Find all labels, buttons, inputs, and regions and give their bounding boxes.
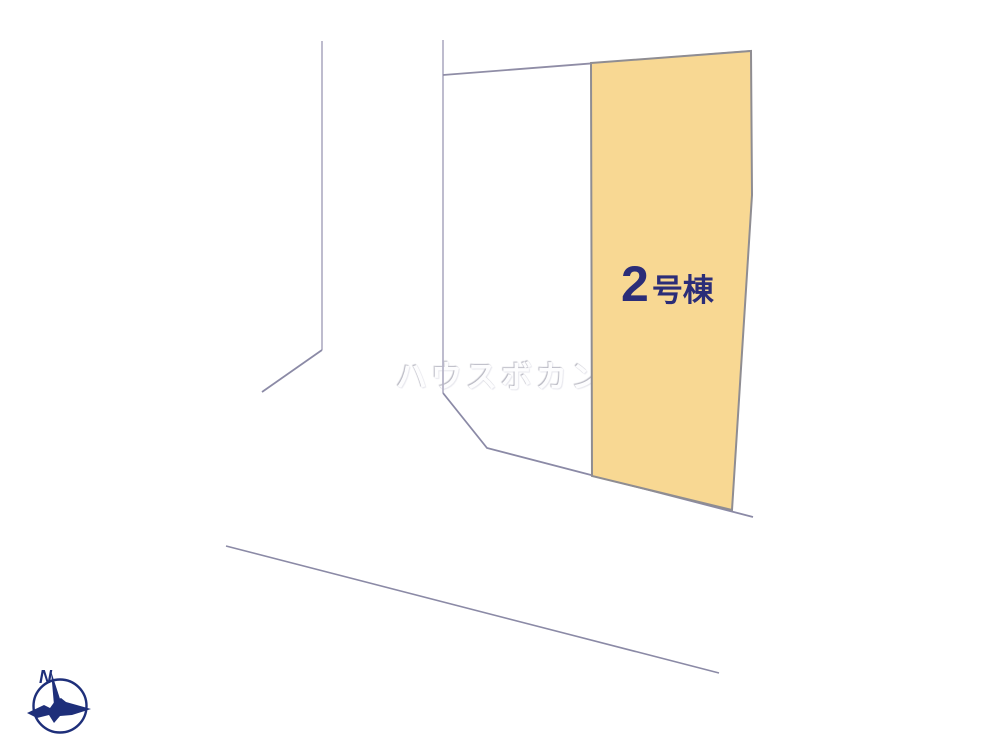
compass-needle [51, 671, 61, 705]
road-line [226, 546, 719, 673]
boundary-line-lower-chamfer [443, 393, 753, 517]
compass-north-label: N [39, 667, 53, 687]
compass-circle [34, 680, 87, 733]
compass-bird-silhouette [27, 698, 91, 723]
boundary-line-left-diagonal [262, 350, 322, 392]
parcel-2-label: 2 号棟 [621, 259, 714, 309]
parcel-2-label-number: 2 [621, 259, 649, 309]
watermark-text: ハウスボカン [396, 352, 606, 397]
boundary-line-top-slanted [443, 51, 751, 75]
compass-icon: N [27, 667, 91, 733]
parcel-2-label-suffix: 号棟 [652, 275, 714, 306]
lot-layout-diagram: ハウスボカン N 2 号棟 [0, 0, 1000, 750]
